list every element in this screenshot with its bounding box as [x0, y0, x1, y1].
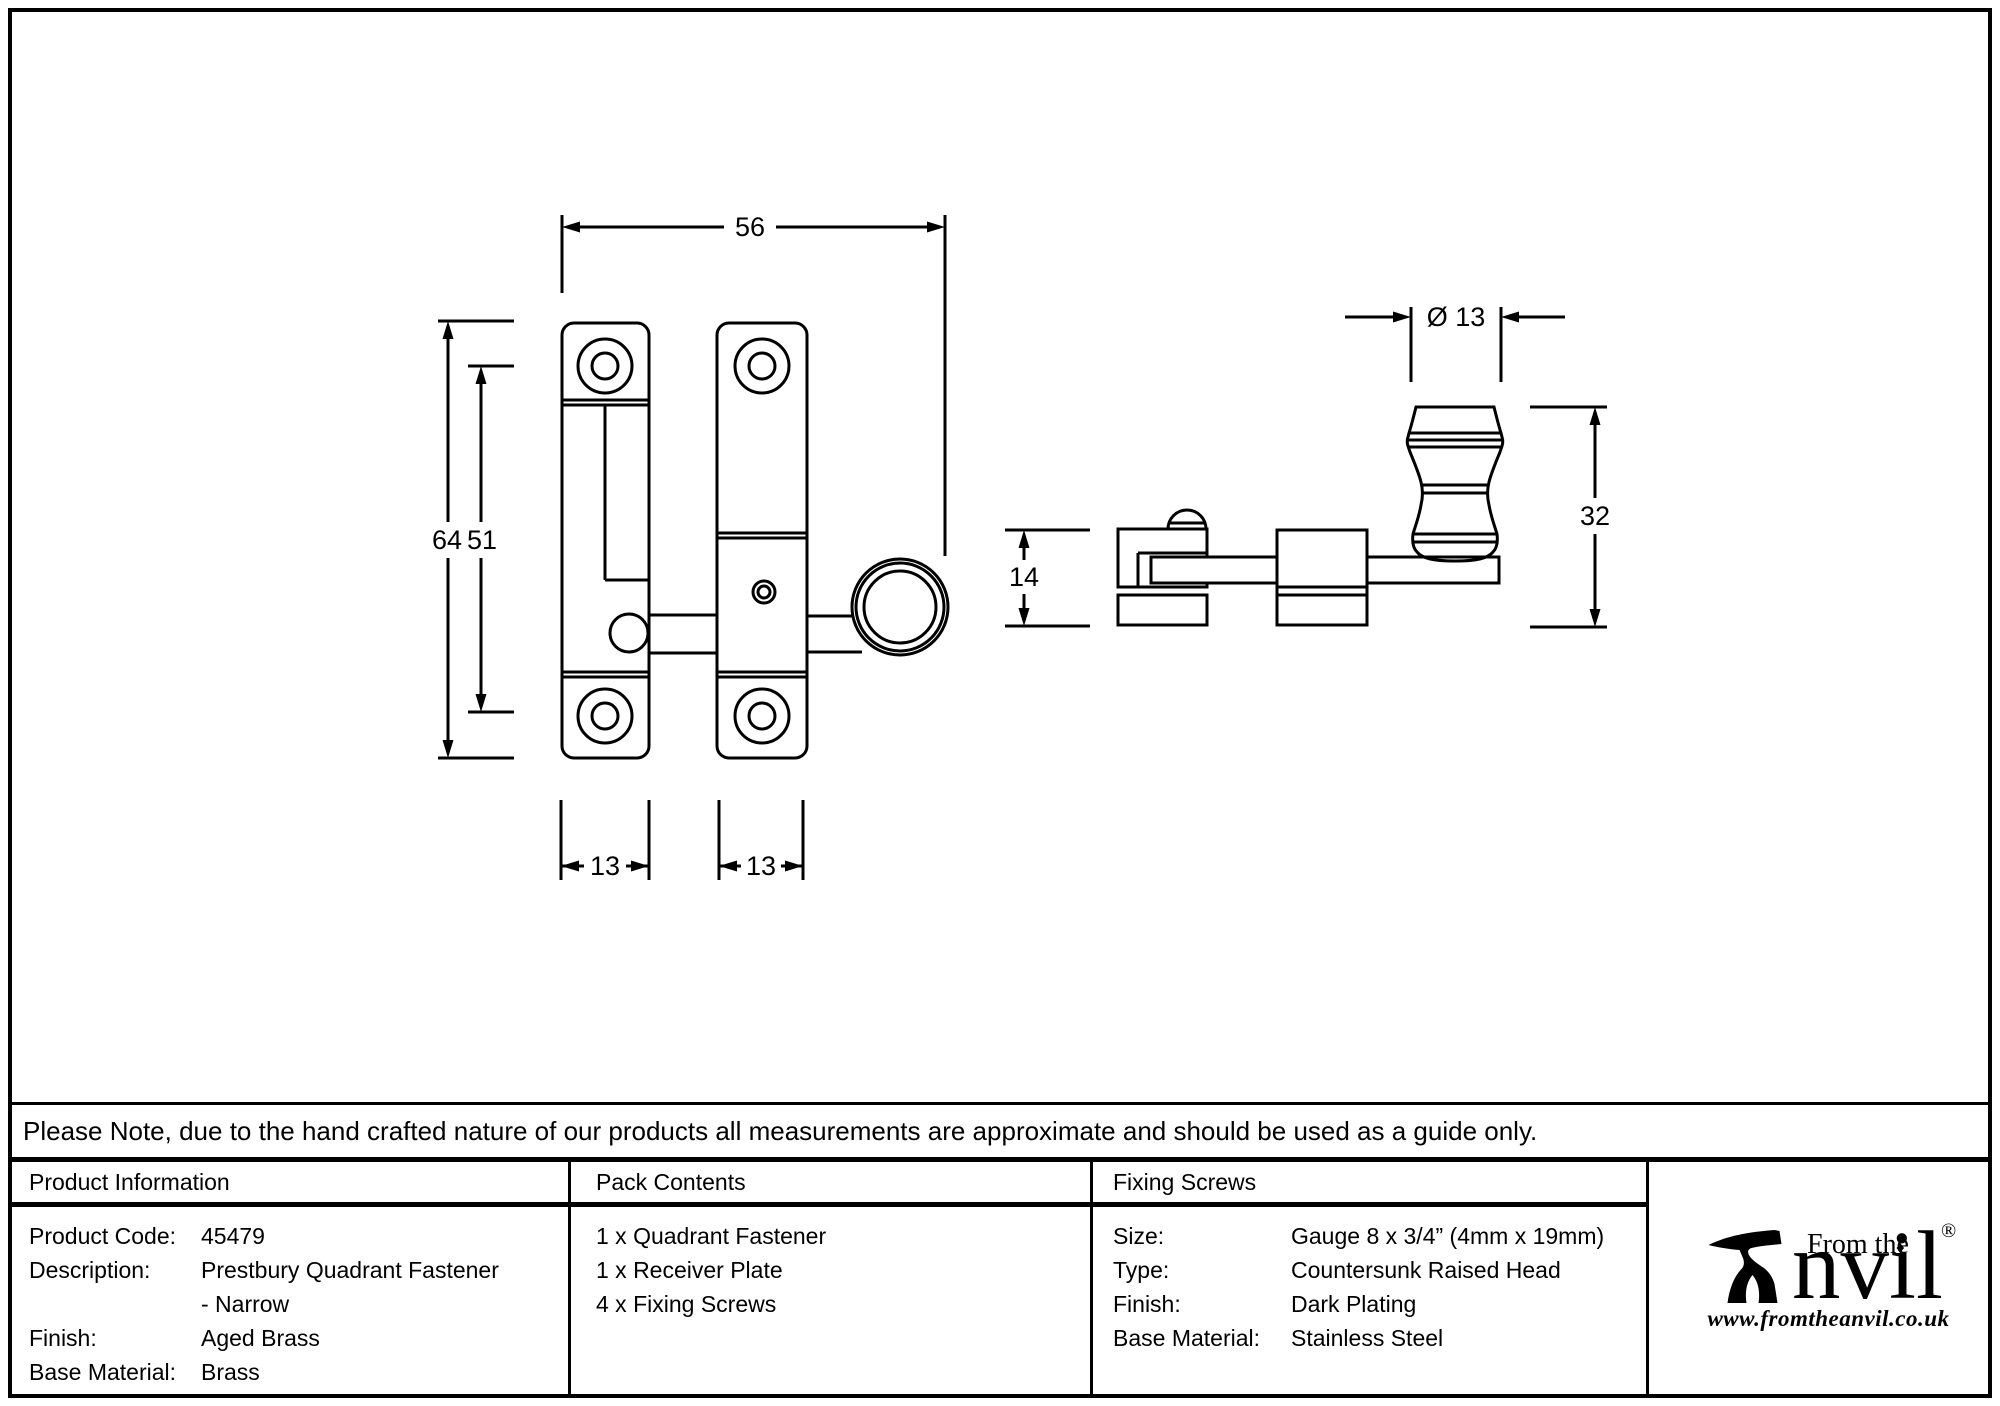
row-label: Finish:: [1113, 1287, 1291, 1321]
dimension-holes-51: 51: [467, 525, 497, 555]
receiver-side-base: [1118, 595, 1207, 625]
dimension-knob-diameter: Ø 13: [1427, 302, 1486, 332]
table-row: Base Material: Brass: [29, 1355, 568, 1389]
row-value: Stainless Steel: [1291, 1321, 1443, 1355]
product-datasheet: 56 64 51: [0, 0, 2000, 1406]
pack-item: 1 x Receiver Plate: [596, 1253, 1090, 1287]
pack-item: 4 x Fixing Screws: [596, 1287, 1090, 1321]
knob-side: [1407, 407, 1503, 561]
receiver-plate: [717, 323, 807, 758]
fixing-screws-column: Fixing Screws Size: Gauge 8 x 3/4” (4mm …: [1090, 1162, 1646, 1395]
anvil-icon: [1706, 1226, 1799, 1308]
table-row: Description: Prestbury Quadrant Fastener: [29, 1253, 568, 1287]
row-value: - Narrow: [201, 1287, 289, 1321]
logo-website: www.fromtheanvil.co.uk: [1706, 1306, 1951, 1332]
row-value: Gauge 8 x 3/4” (4mm x 19mm): [1291, 1219, 1604, 1253]
row-value: Brass: [201, 1355, 260, 1389]
pack-contents-column: Pack Contents 1 x Quadrant Fastener 1 x …: [568, 1162, 1090, 1395]
table-row: Finish: Dark Plating: [1113, 1287, 1646, 1321]
row-label: Size:: [1113, 1219, 1291, 1253]
row-label: [29, 1287, 201, 1321]
dimension-depth-14: 14: [1009, 562, 1039, 592]
fixing-screws-header: Fixing Screws: [1093, 1162, 1646, 1207]
row-value: Countersunk Raised Head: [1291, 1253, 1561, 1287]
table-row: Finish: Aged Brass: [29, 1321, 568, 1355]
table-row: - Narrow: [29, 1287, 568, 1321]
registered-mark: ®: [1941, 1220, 1956, 1243]
product-information-header: Product Information: [11, 1162, 568, 1207]
table-row: Type: Countersunk Raised Head: [1113, 1253, 1646, 1287]
front-view: 56 64 51: [432, 212, 948, 881]
product-information-column: Product Information Product Code: 45479 …: [11, 1162, 568, 1395]
pack-item: 1 x Quadrant Fastener: [596, 1219, 1090, 1253]
row-label: Description:: [29, 1253, 201, 1287]
pack-contents-header: Pack Contents: [571, 1162, 1090, 1207]
note-text: Please Note, due to the hand crafted nat…: [23, 1116, 1537, 1147]
row-value: Prestbury Quadrant Fastener: [201, 1253, 499, 1287]
table-row: Size: Gauge 8 x 3/4” (4mm x 19mm): [1113, 1219, 1646, 1253]
row-label: Product Code:: [29, 1219, 201, 1253]
side-view: Ø 13: [1005, 302, 1610, 627]
row-label: Type:: [1113, 1253, 1291, 1287]
table-row: Product Code: 45479: [29, 1219, 568, 1253]
row-label: Base Material:: [29, 1355, 201, 1389]
table-row: Base Material: Stainless Steel: [1113, 1321, 1646, 1355]
row-value: Dark Plating: [1291, 1287, 1416, 1321]
quadrant-fastener-plate: [562, 323, 649, 758]
brand-column: From the ♦ nvil ® www.fromtheanvil.co.uk: [1646, 1162, 1989, 1395]
quadrant-block-side: [1277, 530, 1367, 625]
row-label: Finish:: [29, 1321, 201, 1355]
row-label: Base Material:: [1113, 1321, 1291, 1355]
dimension-width-56: 56: [735, 212, 765, 242]
dimension-height-64: 64: [432, 525, 462, 555]
from-the-anvil-logo: From the ♦ nvil ® www.fromtheanvil.co.uk: [1649, 1162, 1989, 1395]
ring-handle: [852, 559, 948, 655]
measurement-note: Please Note, due to the hand crafted nat…: [11, 1102, 1989, 1162]
logo-brand-text: nvil: [1792, 1217, 1943, 1314]
dimension-plate-13-right: 13: [746, 851, 776, 881]
row-value: Aged Brass: [201, 1321, 320, 1355]
dimension-plate-13-left: 13: [590, 851, 620, 881]
dimension-height-32: 32: [1580, 501, 1610, 531]
row-value: 45479: [201, 1219, 265, 1253]
info-table: Product Information Product Code: 45479 …: [11, 1162, 1989, 1395]
